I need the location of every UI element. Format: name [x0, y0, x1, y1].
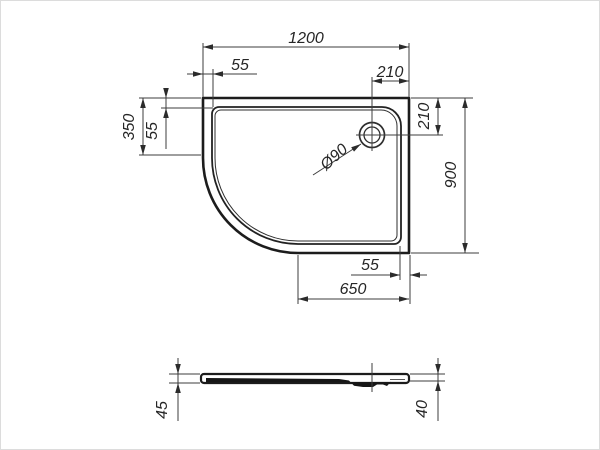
arrowhead [399, 44, 409, 50]
arrowhead [298, 296, 308, 302]
arrowhead [193, 71, 203, 77]
arrowhead [175, 383, 181, 393]
dimension-40-profile-height-right: 40 [410, 358, 445, 421]
tray-outline [203, 98, 409, 253]
dimension-label-40: 40 [414, 400, 431, 418]
arrowhead [435, 125, 441, 135]
shower-tray-technical-drawing: Ø90 1200 55 210 350 55 [1, 1, 600, 450]
arrowhead [390, 272, 400, 278]
dimension-label-210-right: 210 [416, 103, 433, 131]
arrowhead [435, 381, 441, 391]
dimension-label-55-bottom: 55 [361, 257, 379, 274]
dimension-label-210-top: 210 [376, 64, 404, 81]
dimension-210-drain-from-right: 210 [372, 64, 409, 84]
dimension-label-55-top: 55 [231, 57, 249, 74]
dimension-label-900: 900 [443, 162, 460, 189]
dimension-label-55-left: 55 [144, 122, 161, 140]
dimension-650-bottom-straight-edge: 650 [298, 255, 409, 304]
dimension-label-45: 45 [154, 401, 171, 419]
arrowhead [435, 364, 441, 374]
plan-view: Ø90 [203, 77, 443, 253]
side-profile-view [201, 363, 409, 392]
arrowhead [410, 272, 420, 278]
arrowhead [163, 108, 169, 118]
arrowhead [213, 71, 223, 77]
arrowhead [203, 44, 213, 50]
dimension-label-350: 350 [121, 114, 138, 141]
arrowhead [175, 364, 181, 374]
arrowhead [435, 98, 441, 108]
dimension-label-650: 650 [340, 281, 367, 298]
arrowhead [163, 88, 169, 98]
dimension-350-left-straight-edge: 350 [121, 98, 201, 155]
arrowhead [399, 296, 409, 302]
arrowhead [462, 98, 468, 108]
arrowhead [140, 145, 146, 155]
dimension-45-profile-height-left: 45 [154, 358, 200, 421]
arrowhead [140, 98, 146, 108]
dimension-label-1200: 1200 [288, 30, 324, 47]
arrowhead [462, 243, 468, 253]
drawing-sheet: Ø90 1200 55 210 350 55 [0, 0, 600, 450]
